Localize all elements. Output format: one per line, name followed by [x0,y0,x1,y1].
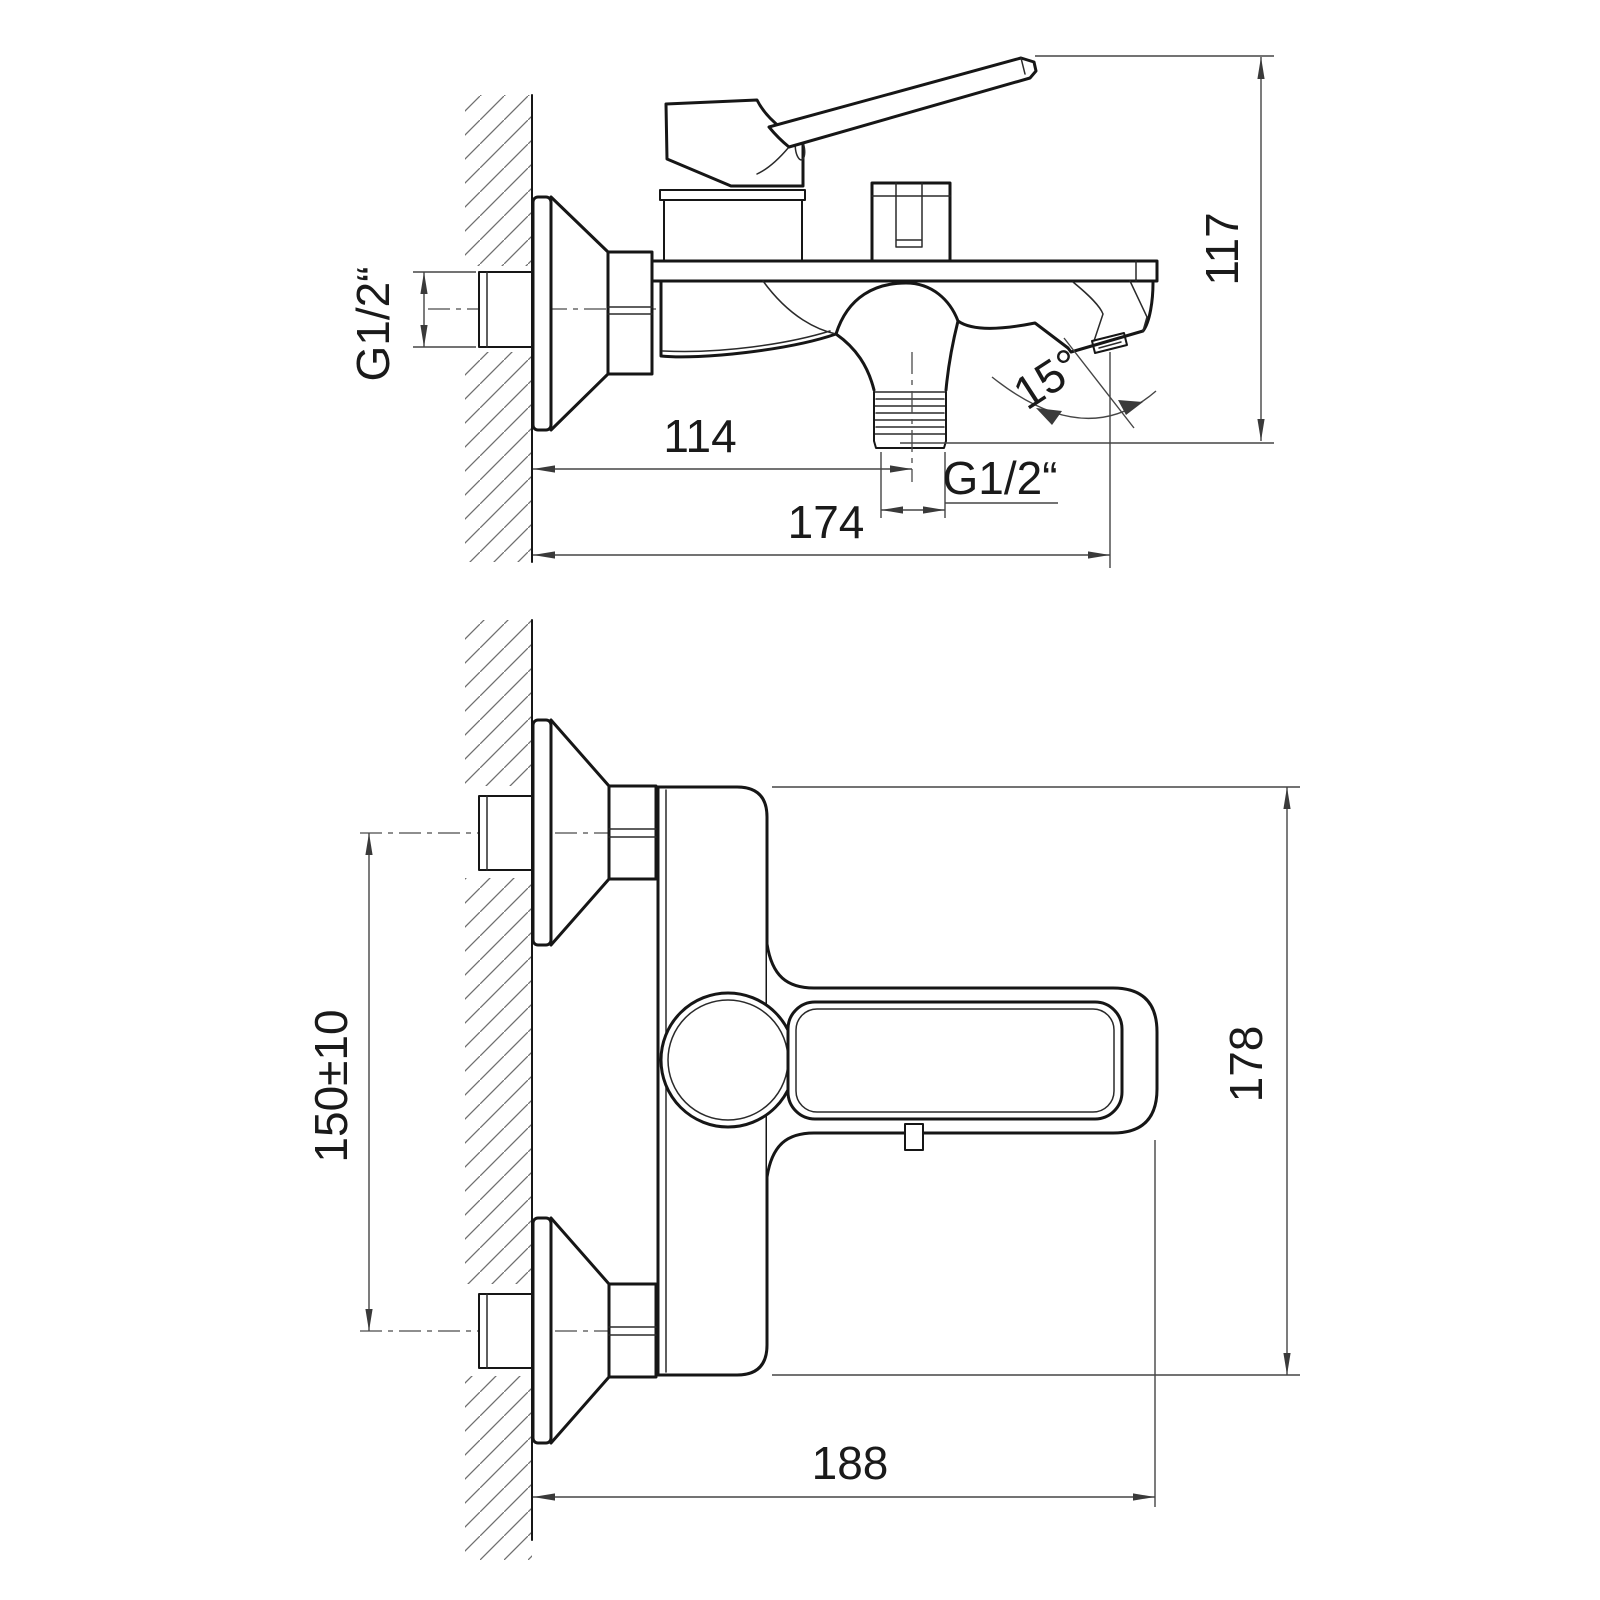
front-view: 150±10 178 188 [305,620,1300,1560]
dimension-188-label: 188 [812,1437,889,1489]
wall-pipe-nipple [479,272,532,347]
side-view: 15° G1/2“ 114 G1/2“ 174 [347,56,1274,568]
dimension-174: 174 [533,496,1110,555]
wall-hatch [465,1376,532,1560]
dimension-150-label: 150±10 [305,1009,357,1162]
handle-knob [661,993,795,1127]
dimension-outlet-thread: G1/2“ [881,452,1058,518]
wall-hatch [465,620,532,786]
lever-handle-front [661,993,1122,1127]
escutcheon [533,1218,551,1443]
spout-deck [652,261,1157,281]
hex-nut [609,1284,656,1377]
wall-section-front [465,620,532,1560]
faucet-technical-drawing: 15° G1/2“ 114 G1/2“ 174 [0,0,1600,1600]
escutcheon [533,720,551,945]
wall-thread-label: G1/2“ [347,266,399,381]
dimension-150: 150±10 [305,833,369,1331]
hex-nut [609,786,656,879]
dimension-178-label: 178 [1220,1026,1272,1103]
dimension-wall-thread: G1/2“ [347,266,476,381]
dimension-114-label: 114 [663,410,736,462]
dimension-117-label: 117 [1196,212,1248,285]
tub-spout-body [661,281,1153,357]
drawing-page: 15° G1/2“ 114 G1/2“ 174 [0,0,1600,1600]
wall-hatch [465,95,532,266]
dimension-117: 117 [900,56,1274,443]
outlet-thread-label: G1/2“ [942,452,1057,504]
dimension-174-label: 174 [788,496,865,548]
diverter-nub [905,1124,923,1150]
hex-nut [608,252,652,374]
wall-hatch [465,878,532,1284]
shower-hose-connector [872,183,950,261]
wall-hatch [465,352,532,562]
lever-handle [769,58,1036,147]
escutcheon [533,197,608,430]
dimension-114: 114 [533,410,912,469]
shower-outlet-thread [836,321,958,482]
